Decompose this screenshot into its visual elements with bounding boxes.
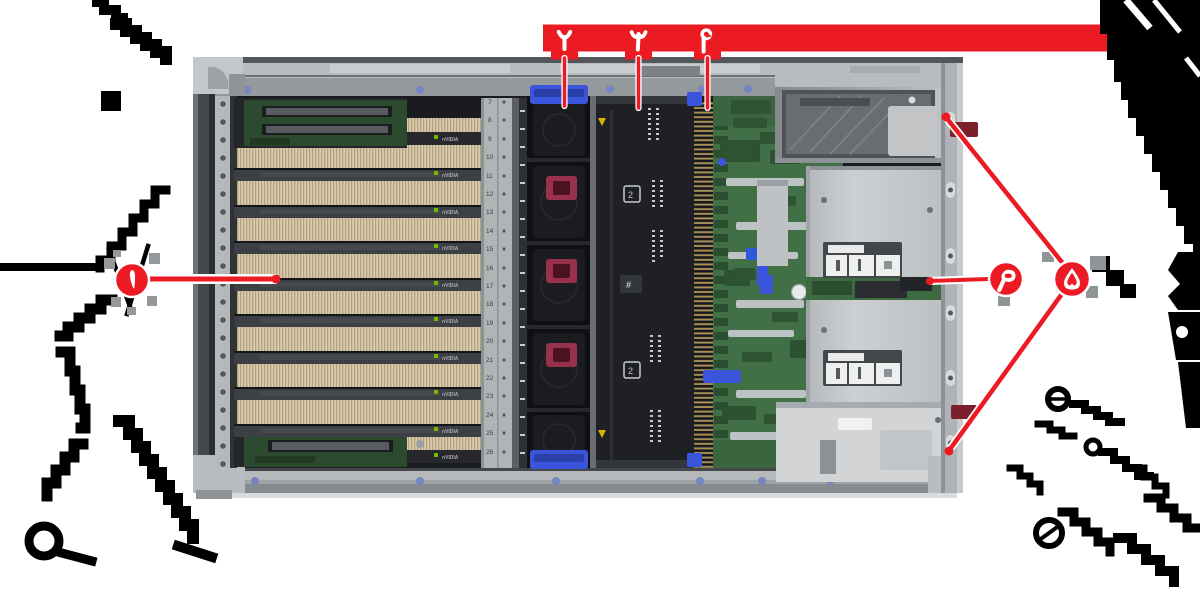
svg-text:25: 25 — [486, 430, 494, 437]
svg-text:23: 23 — [486, 393, 494, 400]
svg-text:nVIDIA: nVIDIA — [442, 137, 459, 143]
svg-text:nVIDIA: nVIDIA — [442, 356, 459, 362]
svg-text:nVIDIA: nVIDIA — [442, 210, 459, 216]
svg-text:2: 2 — [628, 366, 633, 376]
svg-text:14: 14 — [486, 228, 494, 235]
svg-text:8: 8 — [488, 117, 492, 124]
svg-text:13: 13 — [486, 209, 494, 216]
svg-text:nVIDIA: nVIDIA — [442, 283, 459, 289]
svg-text:11: 11 — [486, 173, 493, 180]
svg-text:12: 12 — [486, 191, 494, 198]
svg-text:19: 19 — [486, 320, 494, 327]
svg-text:7: 7 — [488, 99, 492, 106]
svg-text:20: 20 — [486, 338, 494, 345]
svg-text:nVIDIA: nVIDIA — [442, 173, 459, 179]
svg-text:nVIDIA: nVIDIA — [442, 246, 459, 252]
svg-text:10: 10 — [486, 154, 494, 161]
svg-text:26: 26 — [486, 449, 494, 456]
svg-text:nVIDIA: nVIDIA — [442, 392, 459, 398]
svg-text:15: 15 — [486, 246, 494, 253]
svg-text:21: 21 — [486, 357, 494, 364]
svg-text:16: 16 — [486, 265, 494, 272]
svg-text:22: 22 — [486, 375, 494, 382]
svg-text:nVIDIA: nVIDIA — [442, 429, 459, 435]
svg-text:24: 24 — [486, 412, 494, 419]
svg-text:18: 18 — [486, 301, 494, 308]
svg-text:2: 2 — [628, 190, 633, 200]
svg-text:#: # — [626, 280, 631, 290]
svg-text:17: 17 — [486, 283, 494, 290]
svg-text:nVIDIA: nVIDIA — [442, 319, 459, 325]
svg-text:nVIDIA: nVIDIA — [442, 455, 459, 461]
svg-text:9: 9 — [488, 136, 492, 143]
